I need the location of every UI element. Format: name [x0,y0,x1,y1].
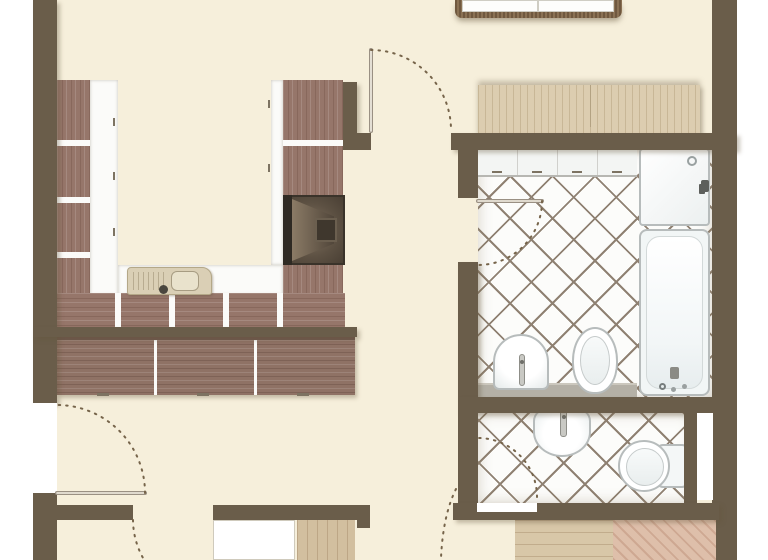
floor-wood-doorway [297,520,355,560]
kitchen-sink-unit [127,267,212,295]
bench-cushion-right [538,0,614,12]
shower-mixer-icon [701,180,709,192]
washbasin-faucet-knob [520,360,524,364]
shower-drain-icon [687,156,697,166]
cabinet-divider [597,150,598,175]
sink-bowl [171,271,199,291]
cabinet-gap [57,197,90,203]
floor-plan [0,0,768,560]
stove [283,195,345,265]
cabinet-handle [612,171,622,173]
stove-left-panel [283,195,292,265]
cabinet-handle [113,172,115,180]
bathroom-wall-cabinets [478,150,637,177]
bathtub [639,229,710,396]
sideboard-divider [254,340,257,395]
floor-wood-pink [613,520,716,560]
cabinet-handle [572,171,582,173]
wc-door-threshold [477,503,537,512]
sideboard [57,337,355,395]
cabinet-gap [223,293,229,330]
wc-wall-niche [697,413,713,500]
toilet-seat [580,336,610,385]
washbasin-faucet-icon [519,354,525,386]
wall-door-left-jamb [343,133,371,150]
kitchen-cabinets-bottom [57,293,345,330]
cabinet-gap [57,252,90,258]
sideboard-foot [97,393,109,396]
cabinet-gap [169,293,175,330]
wall-wc-left [458,413,478,503]
stove-inner-square [315,218,337,242]
shower-tray [639,148,710,226]
cabinet-handle [268,164,270,172]
cabinet-handle [492,171,502,173]
cabinet-handle [113,118,115,126]
cabinet-gap [57,140,90,146]
cabinet-divider [517,150,518,175]
sink-faucet [159,285,168,294]
cabinet-handle [268,100,270,108]
cabinet-handle [532,171,542,173]
wall-bottom-left [55,505,133,520]
rattan-bench [455,0,622,18]
wall-between-bathrooms [458,397,712,413]
wall-bathroom-left-upper [458,150,478,198]
floor-wood-light [515,520,613,560]
wall-right-outer [712,0,737,517]
door-opening-left-wall [33,403,57,493]
cabinet-divider [557,150,558,175]
wc-washbasin [533,407,591,457]
furniture-below-cut [213,520,295,560]
wc-toilet-bowl [618,440,670,492]
wardrobe [478,85,700,139]
wall-right-outer-bottom [716,517,737,560]
sideboard-foot [197,393,209,396]
wall-left-upper [33,0,57,403]
wall-wc-right-pillar [684,413,697,503]
wall-stub-kitchen-ne [343,82,357,133]
bathtub-faucet-icon [670,367,679,379]
bathtub-drain-icon [659,383,666,390]
wall-kitchen-south [33,327,357,337]
cabinet-gap [277,293,283,330]
sideboard-divider [154,340,157,395]
wall-bathroom-north [451,133,737,150]
kitchen-counter-right [271,80,283,265]
wardrobe-divider [590,85,591,127]
sideboard-foot [297,393,309,396]
wall-bathroom-left-lower [458,262,478,397]
wall-bottom-center [213,505,370,520]
cabinet-gap [115,293,121,330]
wc-faucet-knob [562,415,566,419]
bathroom-washbasin [493,334,549,390]
bench-cushion-left [462,0,538,12]
cabinet-handle [113,228,115,236]
bathroom-toilet [572,327,618,394]
wc-toilet-seat [626,448,664,486]
kitchen-counter-left [90,80,118,295]
wall-bottom-center-stub [357,505,370,528]
cabinet-gap [283,140,343,146]
wall-left-lower [33,493,57,560]
